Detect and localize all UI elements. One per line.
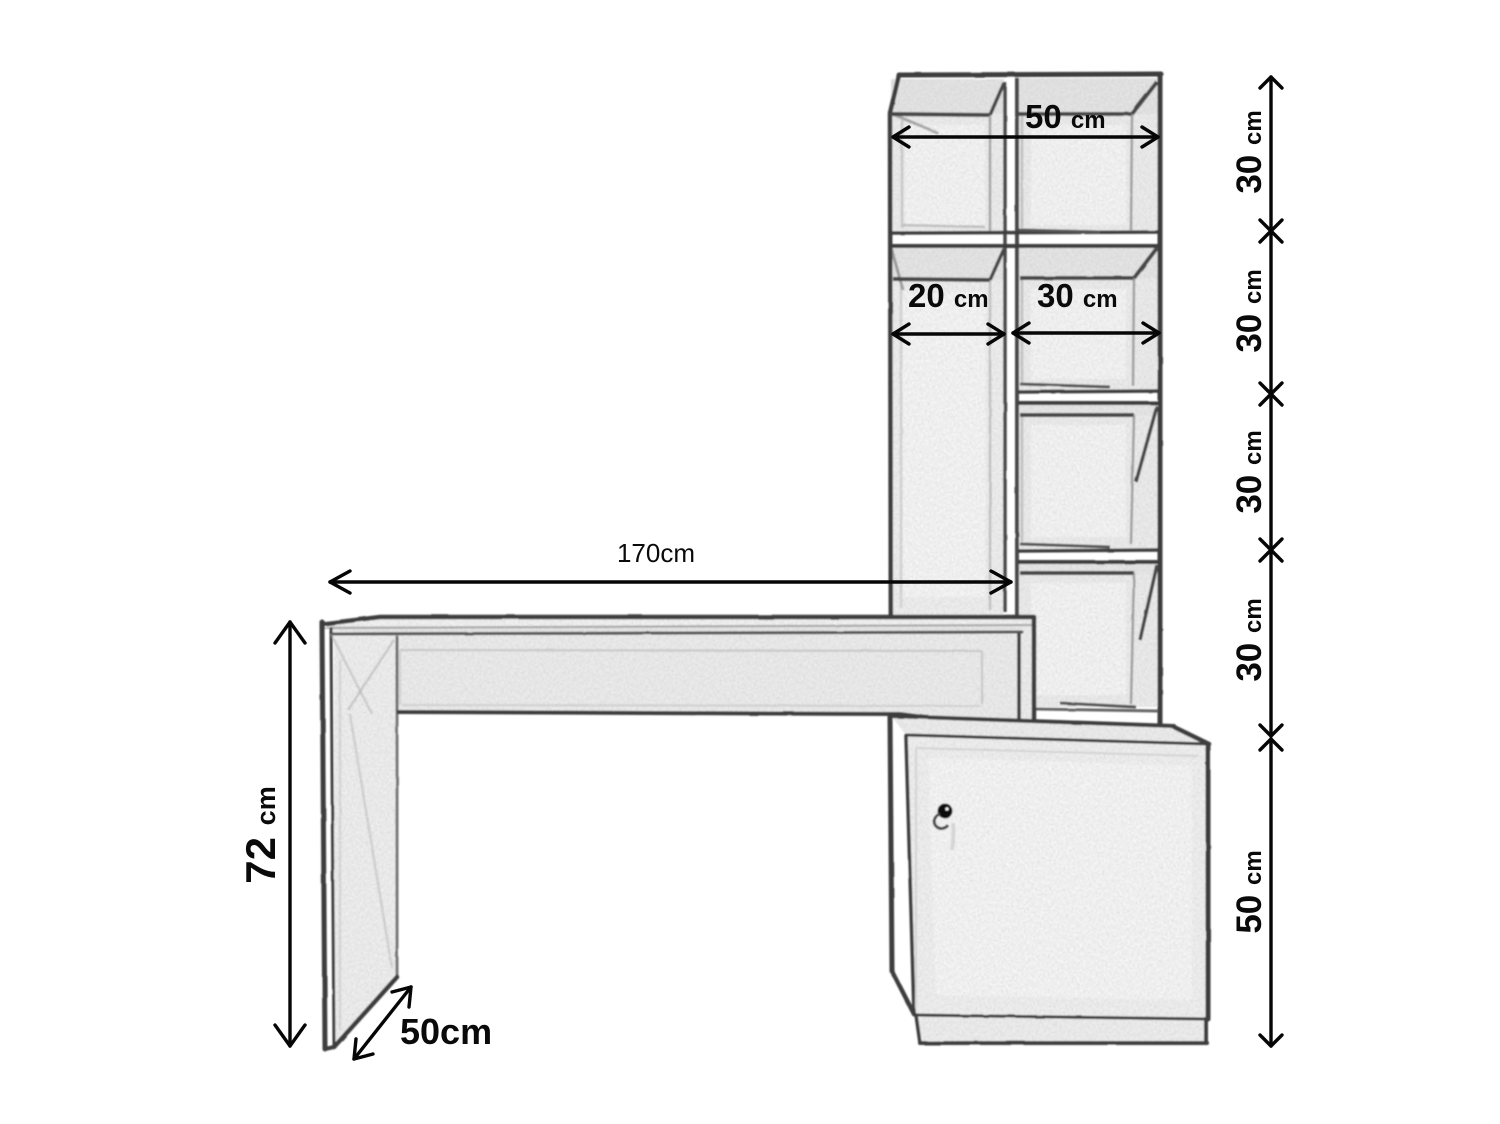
svg-text:170cm: 170cm bbox=[617, 538, 695, 568]
svg-text:50cm: 50cm bbox=[400, 1011, 492, 1052]
